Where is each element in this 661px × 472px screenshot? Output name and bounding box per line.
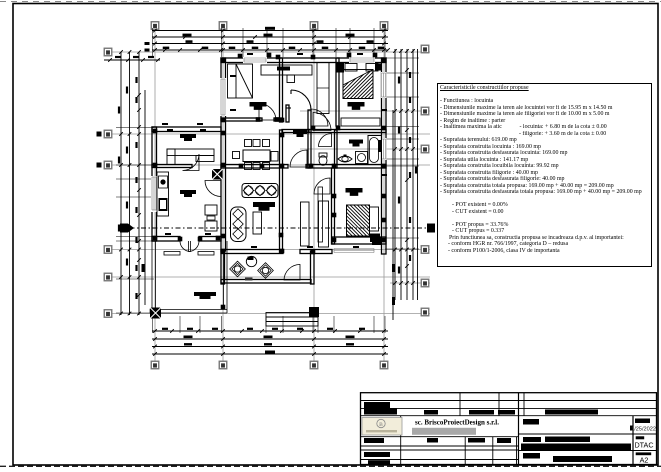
svg-text:1/25/2022: 1/25/2022 [631, 426, 656, 432]
svg-text:A2: A2 [640, 456, 649, 465]
svg-text:sc. BriscoProiectDesign s.r.l: sc. BriscoProiectDesign s.r.l. [415, 419, 499, 427]
svg-text:B: B [379, 422, 383, 428]
svg-text:DTAC: DTAC [634, 441, 653, 450]
